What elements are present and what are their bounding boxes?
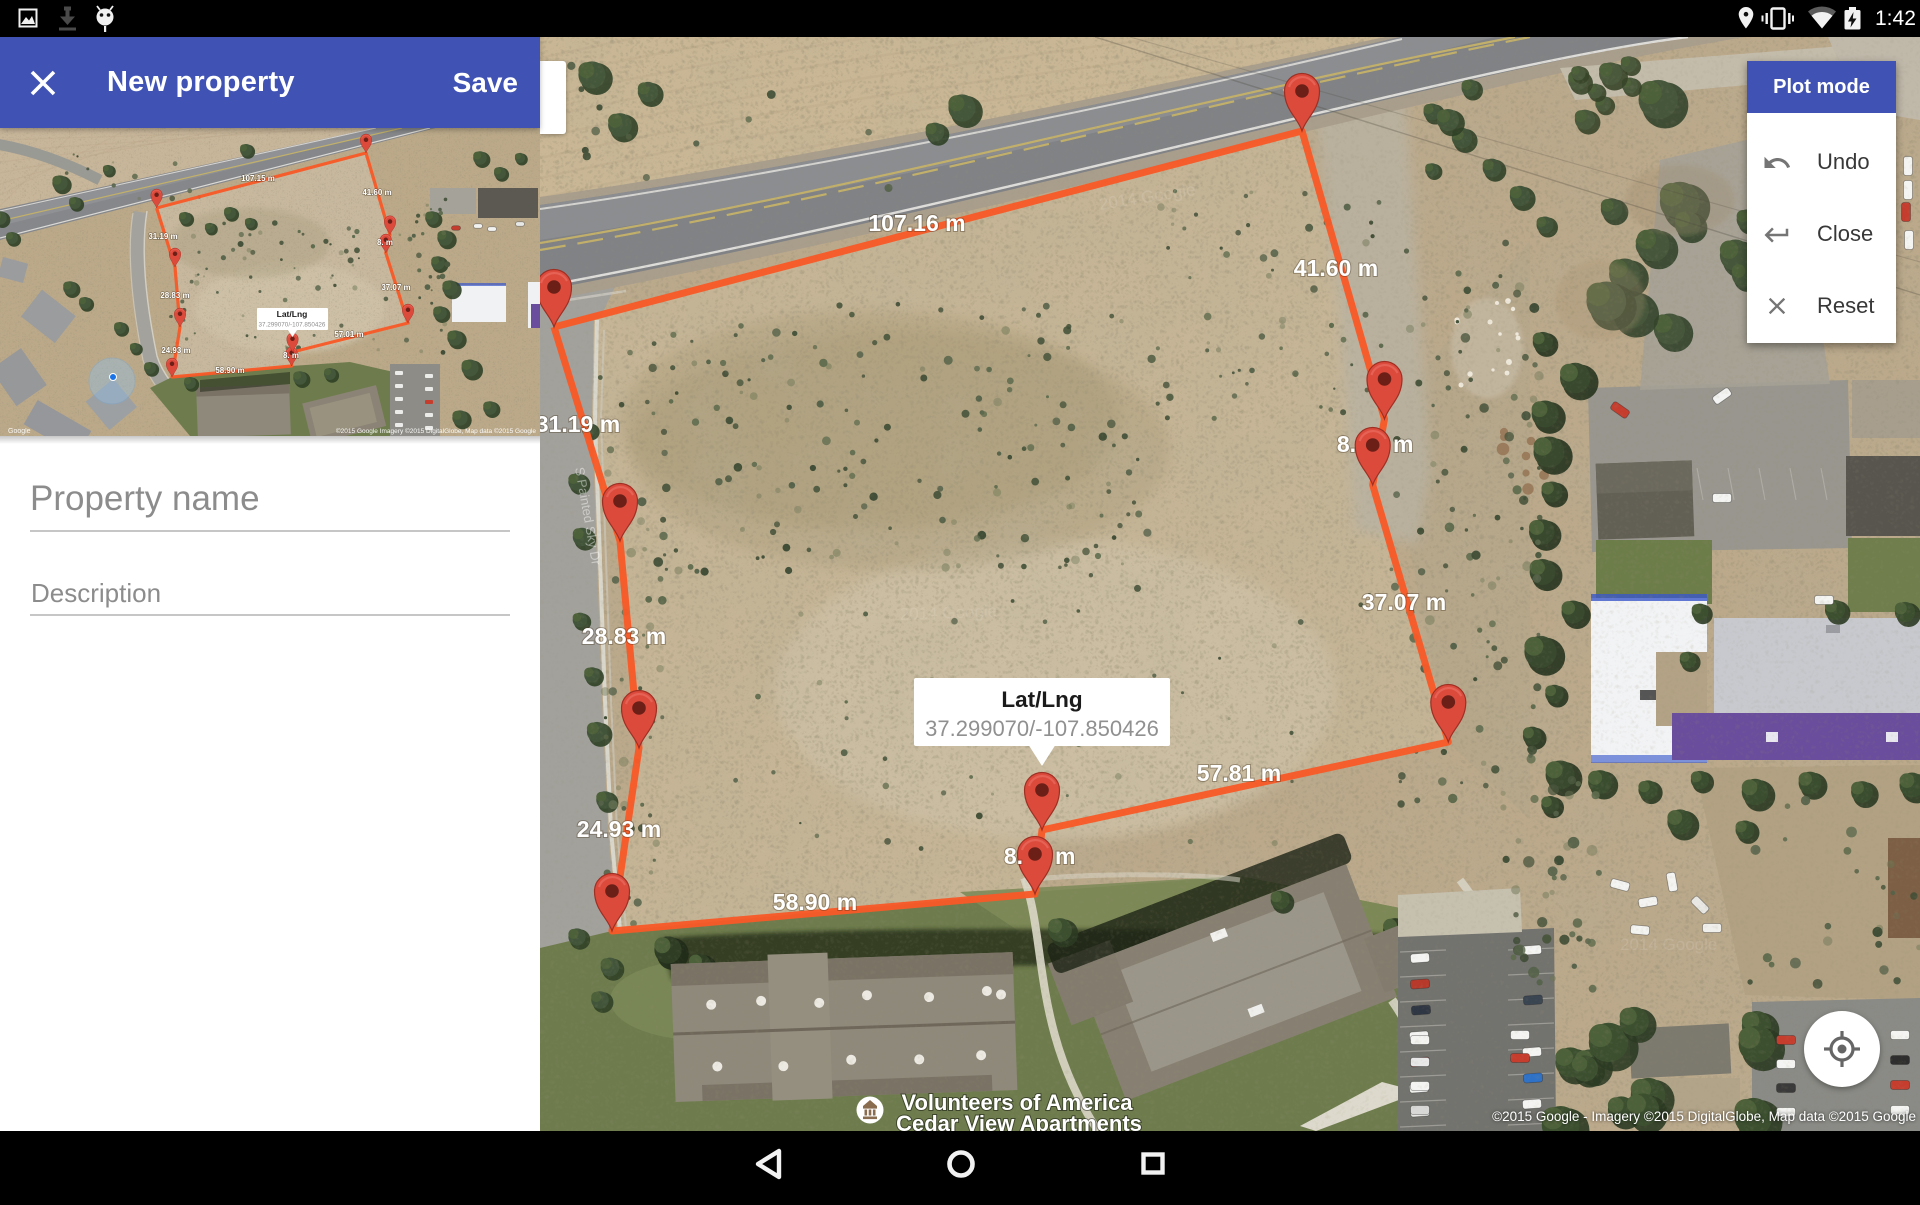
svg-text:24.93 m: 24.93 m [161,346,190,355]
svg-text:28.83 m: 28.83 m [582,623,666,649]
svg-text:©2015 Google Imagery ©2015 Di: ©2015 Google Imagery ©2015 DigitalGlobe,… [336,427,536,435]
svg-text:57.81 m: 57.81 m [1197,760,1281,786]
svg-text:37.299070/-107.850426: 37.299070/-107.850426 [925,716,1159,741]
svg-text:37.07 m: 37.07 m [1362,589,1446,615]
svg-text:37.299070/-107.850426: 37.299070/-107.850426 [259,322,326,329]
svg-text:Lat/Lng: Lat/Lng [277,309,308,319]
svg-text:31.19 m: 31.19 m [148,232,177,241]
svg-text:8. m: 8. m [283,351,299,360]
svg-text:58.90 m: 58.90 m [773,889,857,915]
svg-text:41.60 m: 41.60 m [362,188,391,197]
svg-text:Google: Google [8,428,31,435]
svg-text:58.90 m: 58.90 m [215,366,244,375]
svg-text:©2015 Google - Imagery ©2015 D: ©2015 Google - Imagery ©2015 DigitalGlob… [1492,1109,1916,1124]
svg-text:Cedar View Apartments: Cedar View Apartments [896,1111,1142,1131]
svg-text:8.: 8. [1337,431,1356,457]
svg-text:41.60 m: 41.60 m [1294,255,1378,281]
svg-text:Lat/Lng: Lat/Lng [1001,687,1082,712]
svg-text:107.15 m: 107.15 m [241,174,275,183]
svg-text:107.16 m: 107.16 m [868,210,965,236]
svg-text:57.01 m: 57.01 m [334,330,363,339]
svg-text:24.93 m: 24.93 m [577,816,661,842]
svg-text:37.07 m: 37.07 m [381,283,410,292]
svg-text:8. m: 8. m [377,238,393,247]
svg-text:m: m [1055,843,1075,869]
svg-text:8.: 8. [1004,843,1023,869]
svg-text:1:42: 1:42 [1875,7,1915,30]
svg-text:m: m [1393,431,1413,457]
svg-text:28.83 m: 28.83 m [160,291,189,300]
svg-text:31.19 m: 31.19 m [540,411,620,437]
